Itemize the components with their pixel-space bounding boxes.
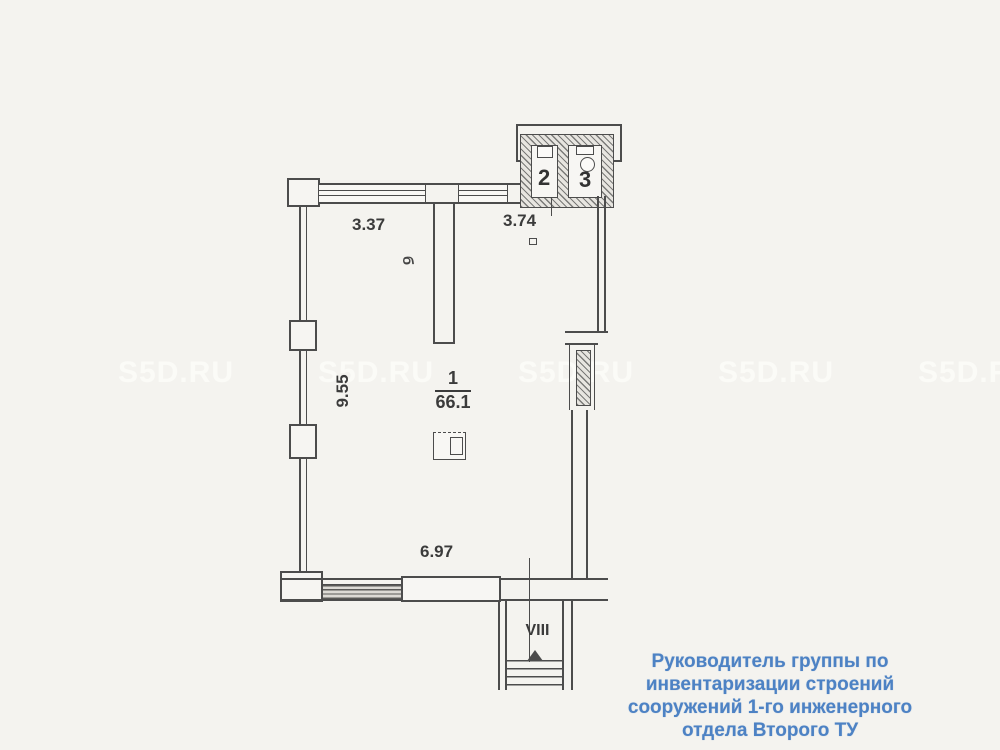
sink-icon	[537, 146, 553, 158]
vestibule-left-wall	[498, 601, 507, 690]
bottom-window-block	[401, 576, 501, 602]
room-2-number: 2	[538, 165, 550, 191]
stairs-icon	[507, 660, 562, 690]
top-window-right	[458, 184, 508, 203]
signature-block: Руководитель группы по инвентаризации ст…	[555, 650, 985, 742]
right-wall-upper	[597, 196, 606, 333]
entrance-label: VIII	[515, 622, 560, 640]
room-1-number: 1	[430, 368, 476, 389]
dimension-left: 9.55	[333, 366, 351, 416]
top-left-pier	[287, 178, 320, 207]
watermark-text: S5D.RU	[918, 356, 1000, 390]
room-3-number: 3	[579, 167, 591, 193]
toilet-tank-icon	[576, 146, 594, 155]
room-1-area: 66.1	[430, 392, 476, 413]
signature-line: отдела Второго ТУ	[555, 719, 985, 742]
right-wall-lower	[571, 410, 588, 578]
left-wall	[299, 205, 307, 578]
top-window-left	[318, 184, 426, 203]
partition-mark: б	[399, 256, 416, 265]
partition-wall	[433, 204, 455, 344]
stair-direction-arrow-icon	[527, 650, 543, 661]
dimension-bottom: 6.97	[420, 542, 453, 562]
small-square-mark	[529, 238, 537, 245]
dimension-top-right: 3.74	[503, 211, 536, 231]
bottom-window-striped	[322, 584, 402, 600]
watermark-text: S5D.RU	[118, 356, 234, 390]
room-1-label: 1 66.1	[430, 368, 476, 413]
scanned-floor-plan-page: { "colors": { "background": "#f4f3ef", "…	[0, 0, 1000, 750]
signature-line: инвентаризации строений	[555, 673, 985, 696]
right-channel-hatch	[576, 350, 591, 406]
stove-symbol-inner	[450, 437, 463, 455]
left-wall-column-2	[289, 424, 317, 459]
watermark-text: S5D.RU	[718, 356, 834, 390]
right-ledge-line-a	[565, 331, 608, 333]
room-2-leader-line	[551, 198, 552, 216]
dimension-top-left: 3.37	[352, 215, 385, 235]
entrance-section-line	[529, 558, 530, 662]
signature-line: сооружений 1-го инженерного	[555, 696, 985, 719]
signature-line: Руководитель группы по	[555, 650, 985, 673]
left-wall-column-1	[289, 320, 317, 351]
